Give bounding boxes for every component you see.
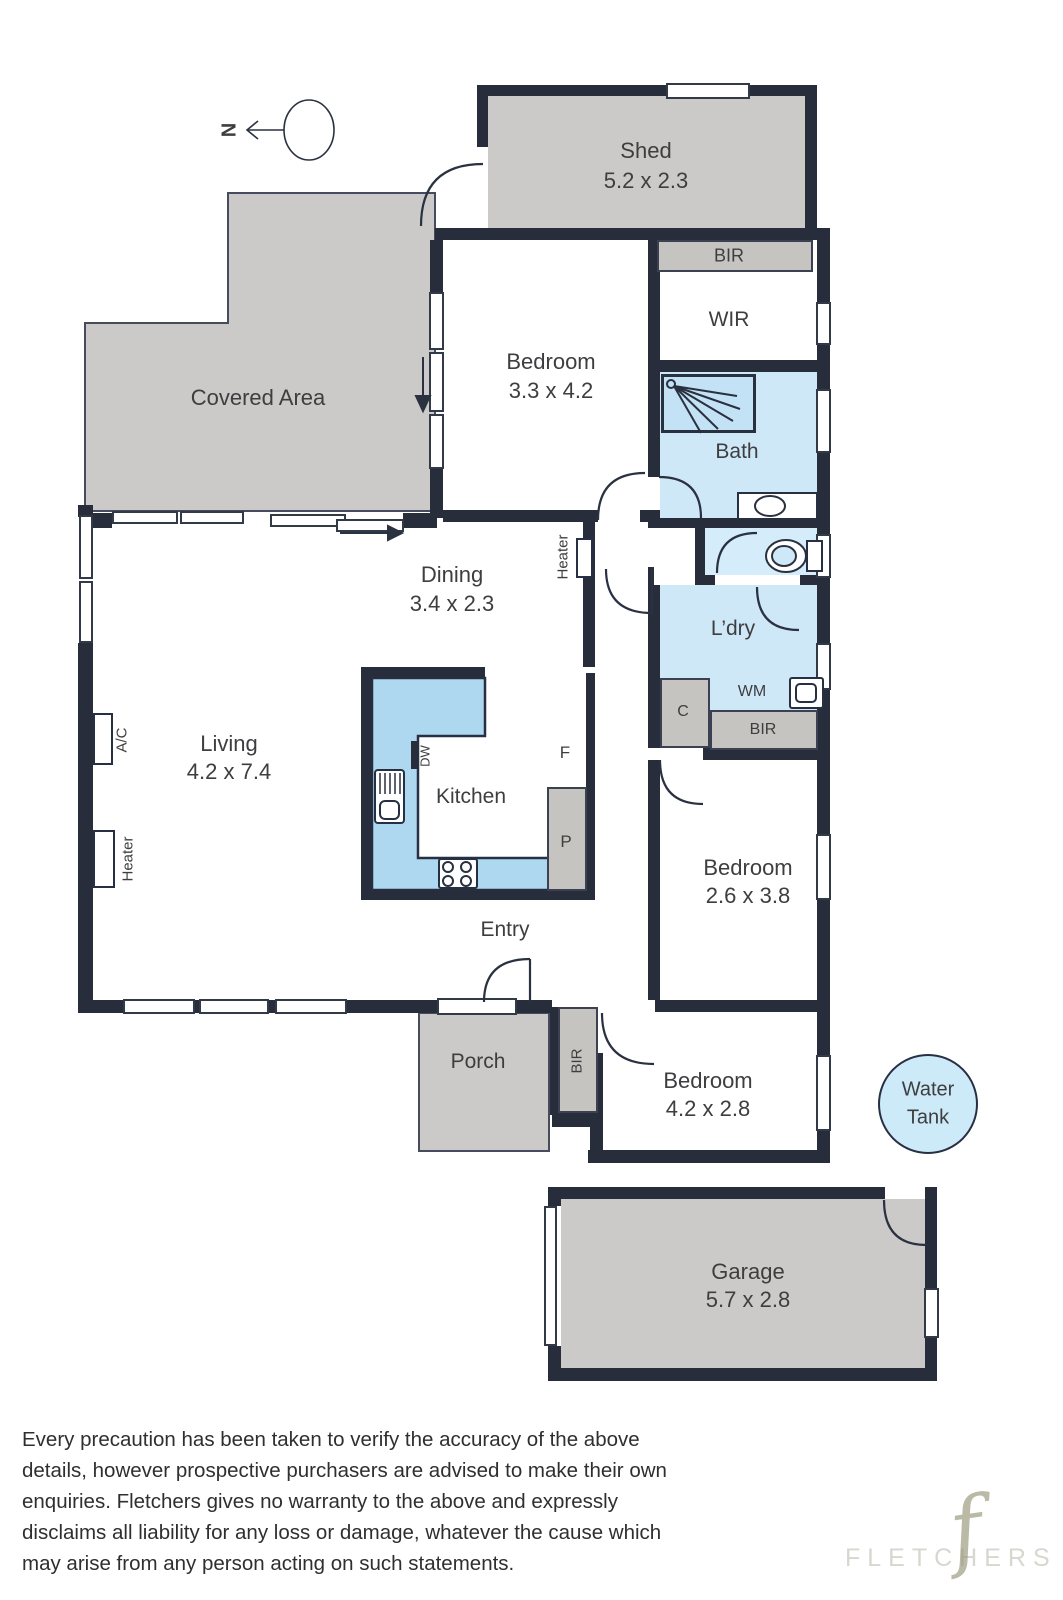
sliding-door-panel xyxy=(270,514,346,527)
window xyxy=(123,999,195,1014)
bedroom3-door-arc xyxy=(602,1013,654,1064)
wall-segment xyxy=(361,890,595,900)
window xyxy=(816,1055,831,1131)
washing-machine-door xyxy=(795,683,817,703)
window xyxy=(666,83,750,99)
window xyxy=(429,292,444,350)
porch-area xyxy=(418,1012,550,1152)
hall-heater-unit xyxy=(576,538,593,578)
disclaimer-line: details, however prospective purchasers … xyxy=(22,1455,667,1486)
window xyxy=(429,414,444,469)
covered-area xyxy=(85,193,435,511)
wall-segment xyxy=(517,1000,552,1013)
bedroom2-door-arc xyxy=(660,760,703,804)
shower xyxy=(661,374,756,433)
window xyxy=(816,834,831,900)
bedroom1-dims: 3.3 x 4.2 xyxy=(509,378,593,404)
garage-label: Garage xyxy=(711,1259,784,1285)
wall-segment xyxy=(477,85,817,96)
bedroom1-door-arc xyxy=(598,473,645,520)
laundry-label: L’dry xyxy=(711,617,755,641)
bedroom1-label: Bedroom xyxy=(506,349,595,375)
water-tank-label-2: Tank xyxy=(907,1107,949,1130)
sliding-door-panel xyxy=(180,511,244,524)
sliding-door-panel xyxy=(336,519,404,532)
toilet-cistern xyxy=(806,540,823,572)
bedroom3-dims: 4.2 x 2.8 xyxy=(666,1096,750,1122)
wall-segment xyxy=(648,240,660,477)
wall-segment xyxy=(548,1368,937,1381)
wall-segment xyxy=(817,900,830,1057)
wall-segment xyxy=(695,528,705,575)
sink-basin xyxy=(379,800,400,820)
kitchen-label: Kitchen xyxy=(436,785,506,809)
shed-label: Shed xyxy=(620,138,671,164)
entry-door-arc xyxy=(484,959,530,1002)
covered-area-label: Covered Area xyxy=(191,385,326,411)
wall-segment xyxy=(548,1187,885,1199)
wall-segment xyxy=(925,1199,937,1292)
wall-segment xyxy=(361,667,372,890)
living-dims: 4.2 x 7.4 xyxy=(187,759,271,785)
disclaimer-text: Every precaution has been taken to verif… xyxy=(22,1424,667,1579)
garage-door-panel xyxy=(544,1206,557,1346)
window xyxy=(429,352,444,412)
wall-segment xyxy=(361,667,485,678)
window xyxy=(924,1288,939,1338)
bir-top-label: BIR xyxy=(714,246,744,267)
wall-segment xyxy=(430,469,443,518)
wir-label: WIR xyxy=(709,308,750,332)
dishwasher-label: DW xyxy=(418,745,433,767)
wall-segment xyxy=(805,85,817,228)
disclaimer-line: disclaims all liability for any loss or … xyxy=(22,1517,667,1548)
wall-segment xyxy=(648,360,830,372)
bedroom2-dims: 2.6 x 3.8 xyxy=(706,883,790,909)
bir-mid-label: BIR xyxy=(750,721,777,739)
dining-dims: 3.4 x 2.3 xyxy=(410,591,494,617)
ac-unit xyxy=(93,713,113,765)
wall-segment xyxy=(78,643,93,1013)
pantry-label: P xyxy=(560,832,571,852)
ac-label: A/C xyxy=(114,727,131,752)
wall-segment xyxy=(817,690,830,836)
sliding-door-panel xyxy=(112,511,178,524)
bir-entry-label: BIR xyxy=(569,1048,586,1073)
wall-segment xyxy=(586,673,595,898)
water-tank-label-1: Water xyxy=(902,1079,955,1102)
wall-segment xyxy=(640,510,660,522)
wall-segment xyxy=(477,85,488,147)
window xyxy=(816,389,831,453)
wall-segment xyxy=(817,345,830,391)
wall-segment xyxy=(548,1346,561,1368)
window xyxy=(199,999,269,1014)
entry-door-threshold xyxy=(437,998,517,1015)
shed-door-arc xyxy=(421,164,483,226)
wall-segment xyxy=(435,228,830,240)
north-arrow-icon xyxy=(247,100,334,160)
living-heater-label: Heater xyxy=(120,836,137,881)
disclaimer-line: Every precaution has been taken to verif… xyxy=(22,1424,667,1455)
water-tank xyxy=(878,1054,978,1154)
window xyxy=(816,302,831,345)
porch-label: Porch xyxy=(451,1050,506,1074)
wall-segment xyxy=(925,1187,937,1199)
wall-segment xyxy=(548,1187,561,1206)
wall-segment xyxy=(430,240,443,292)
fletchers-watermark: f FLETCHERS xyxy=(830,1460,1060,1600)
wall-segment xyxy=(403,513,437,528)
wall-segment xyxy=(695,575,715,585)
hall-door-arc xyxy=(606,569,652,613)
wall-segment xyxy=(925,1338,937,1368)
washing-machine-label: WM xyxy=(738,683,766,701)
wc-floor xyxy=(705,528,817,575)
dining-label: Dining xyxy=(421,562,483,588)
living-label: Living xyxy=(200,731,257,757)
shed-dims: 5.2 x 2.3 xyxy=(604,168,688,194)
bedroom3-label: Bedroom xyxy=(663,1068,752,1094)
entry-label: Entry xyxy=(480,918,529,942)
north-label: N xyxy=(219,123,242,137)
wall-segment xyxy=(443,510,598,522)
sliding-door-arrow-down xyxy=(416,357,430,411)
wall-segment xyxy=(550,1007,558,1115)
window xyxy=(79,515,93,579)
wall-segment xyxy=(817,453,830,536)
window xyxy=(275,999,347,1014)
bath-vanity xyxy=(737,492,818,520)
hall-heater-label: Heater xyxy=(555,534,572,579)
wall-segment xyxy=(648,760,660,1000)
bath-label: Bath xyxy=(715,440,758,464)
stove xyxy=(438,858,478,889)
disclaimer-line: enquiries. Fletchers gives no warranty t… xyxy=(22,1486,667,1517)
bedroom2-label: Bedroom xyxy=(703,855,792,881)
fletchers-brand-text: FLETCHERS xyxy=(845,1544,1057,1573)
fridge-label: F xyxy=(560,743,570,763)
window xyxy=(79,581,93,643)
wall-segment xyxy=(817,1131,830,1163)
wall-segment xyxy=(655,1000,830,1012)
wall-segment xyxy=(817,578,830,645)
garage-dims: 5.7 x 2.8 xyxy=(706,1287,790,1313)
floor-plan: N Shed 5.2 x 2.3 Covered Area Bedroom 3.… xyxy=(0,0,1063,1600)
wall-segment xyxy=(817,240,830,304)
closet-c-label: C xyxy=(677,703,689,721)
living-heater-unit xyxy=(93,830,115,888)
wall-segment xyxy=(648,567,654,613)
disclaimer-line: may arise from any person acting on such… xyxy=(22,1548,667,1579)
wall-segment xyxy=(588,1150,830,1163)
